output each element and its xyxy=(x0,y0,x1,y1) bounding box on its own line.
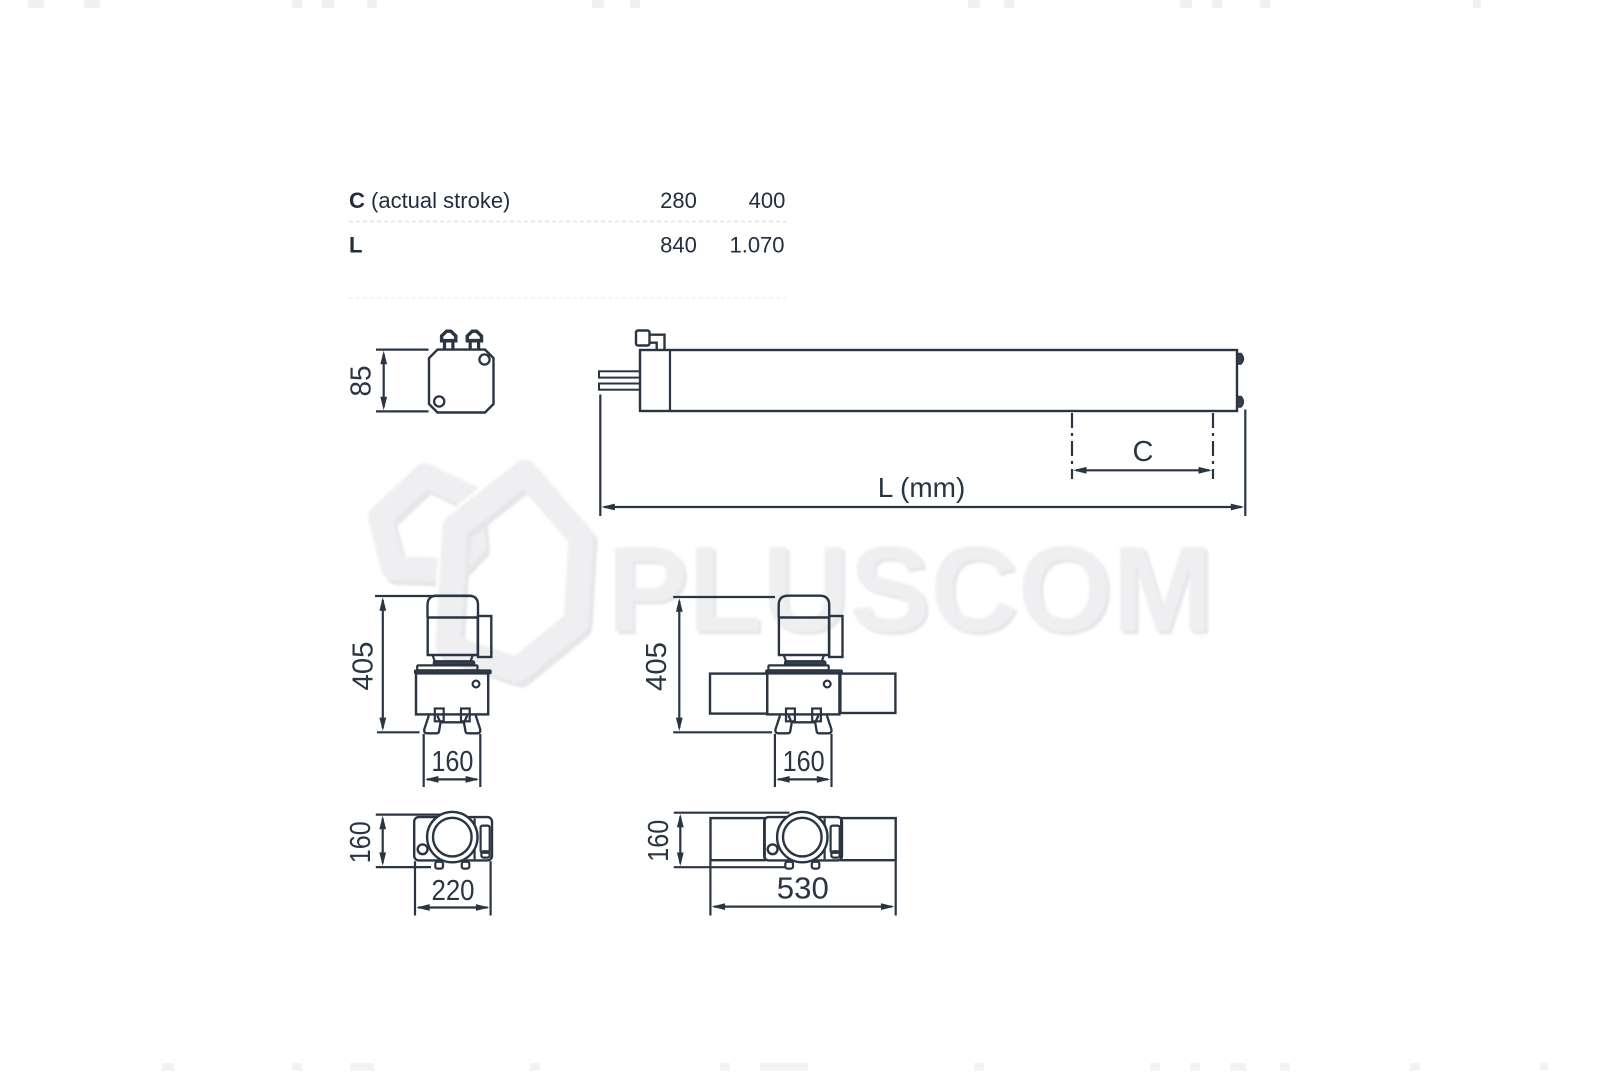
svg-text:160: 160 xyxy=(345,821,377,863)
svg-text:405: 405 xyxy=(641,642,673,691)
svg-text:220: 220 xyxy=(432,875,475,907)
svg-text:530: 530 xyxy=(777,871,829,906)
svg-text:85: 85 xyxy=(346,366,378,397)
svg-text:C: C xyxy=(1133,436,1154,468)
svg-text:405: 405 xyxy=(348,642,380,691)
svg-text:L: L xyxy=(349,233,362,258)
svg-text:L (mm): L (mm) xyxy=(878,472,966,503)
svg-text:PLUSCOM: PLUSCOM xyxy=(607,521,1213,657)
svg-text:280: 280 xyxy=(660,188,697,213)
svg-text:840: 840 xyxy=(660,233,697,258)
svg-text:160: 160 xyxy=(643,820,675,862)
svg-text:1.070: 1.070 xyxy=(729,233,784,258)
svg-text:C (actual stroke): C (actual stroke) xyxy=(349,188,510,213)
svg-text:160: 160 xyxy=(783,746,825,778)
svg-text:160: 160 xyxy=(431,746,473,778)
svg-text:400: 400 xyxy=(749,188,786,213)
